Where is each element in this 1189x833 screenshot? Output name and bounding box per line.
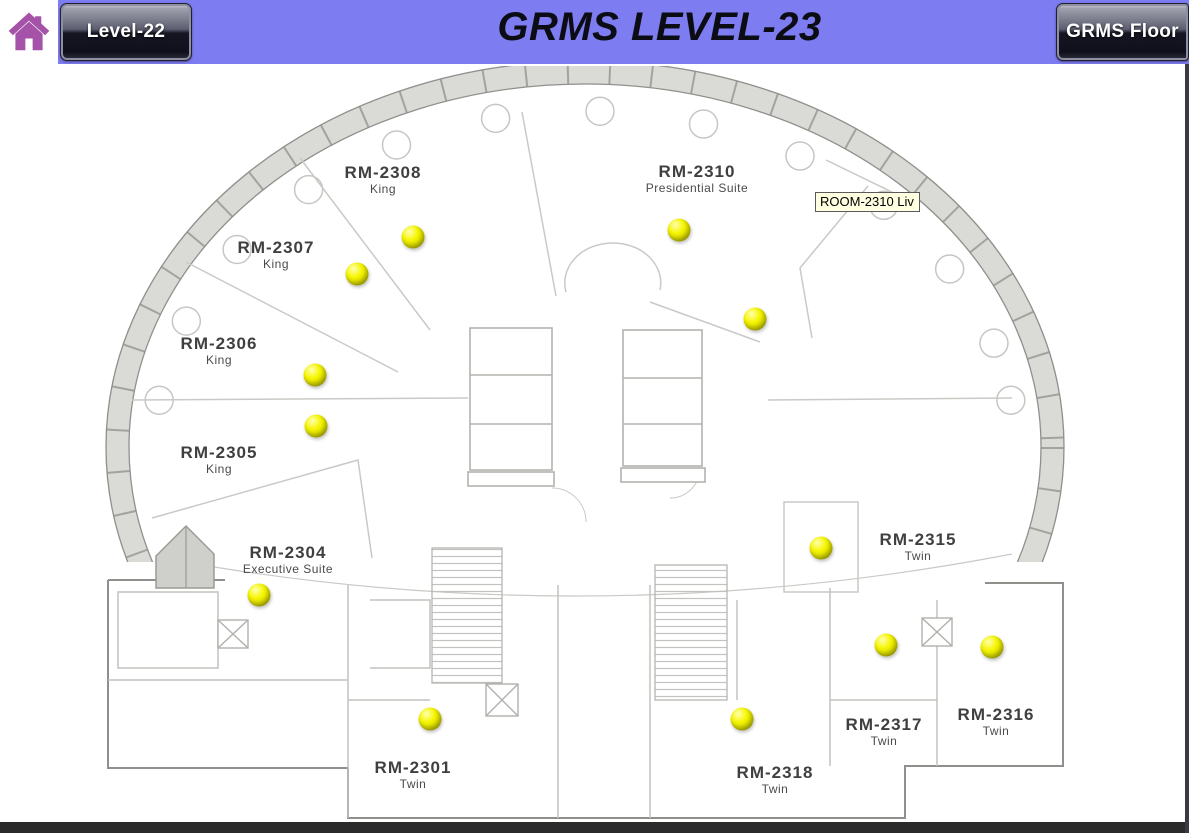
room-status-indicator[interactable]	[346, 263, 369, 286]
column-circle	[295, 176, 323, 204]
tooltip: ROOM-2310 Liv	[815, 192, 920, 212]
grms-screen: RM-2308 King RM-2307 King RM-2306 King R…	[0, 0, 1189, 833]
column-circle	[786, 142, 814, 170]
room-status-indicator[interactable]	[419, 708, 442, 731]
home-icon	[6, 8, 52, 56]
column-circle	[482, 104, 510, 132]
right-edge-strip	[1185, 0, 1189, 833]
room-status-indicator[interactable]	[305, 415, 328, 438]
header-band: Level-22 GRMS LEVEL-23 GRMS Floor	[58, 0, 1189, 64]
room-status-indicator[interactable]	[668, 219, 691, 242]
podium-outline	[108, 580, 1063, 818]
room-status-indicator[interactable]	[875, 634, 898, 657]
page-title: GRMS LEVEL-23	[94, 5, 1189, 50]
column-circle	[997, 386, 1025, 414]
column-circle	[690, 110, 718, 138]
floor-plan-drawing	[0, 0, 1189, 833]
room-status-indicator[interactable]	[981, 636, 1004, 659]
grms-floor-button[interactable]: GRMS Floor	[1056, 3, 1189, 61]
column-circle	[936, 255, 964, 283]
central-core-blocks	[468, 328, 705, 486]
stair-cores	[432, 548, 727, 700]
perimeter-columns	[145, 97, 1025, 414]
room-status-indicator[interactable]	[304, 364, 327, 387]
room-status-indicator[interactable]	[402, 226, 425, 249]
room-status-indicator[interactable]	[731, 708, 754, 731]
column-circle	[172, 307, 200, 335]
room-status-indicator[interactable]	[810, 537, 833, 560]
column-circle	[223, 236, 251, 264]
level-22-button[interactable]: Level-22	[60, 3, 192, 61]
column-circle	[383, 131, 411, 159]
room-status-indicator[interactable]	[744, 308, 767, 331]
bottom-bar	[0, 822, 1189, 833]
dome-ring	[106, 61, 1064, 833]
home-button[interactable]	[0, 0, 58, 64]
column-circle	[980, 329, 1008, 357]
column-circle	[586, 97, 614, 125]
room-status-indicator[interactable]	[248, 584, 271, 607]
elevator-boxes	[218, 618, 952, 716]
corner-shaft	[156, 526, 214, 588]
